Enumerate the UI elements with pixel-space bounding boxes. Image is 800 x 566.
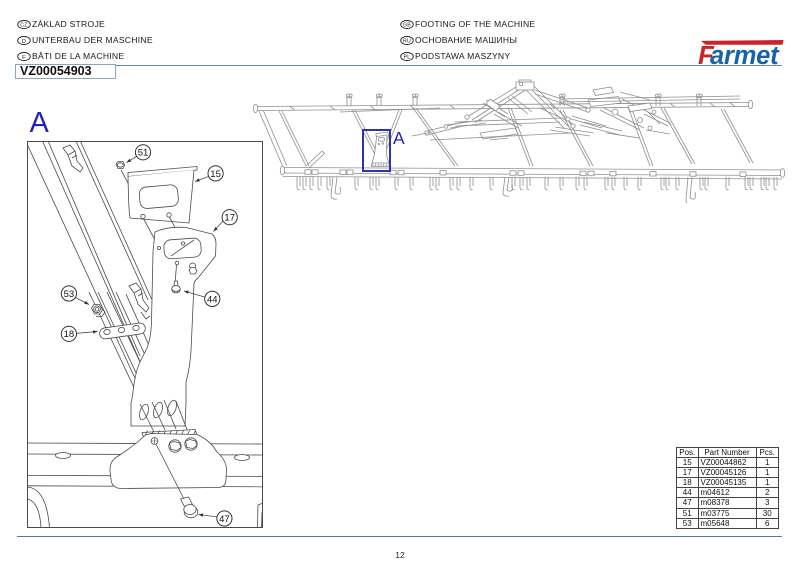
svg-text:D: D — [22, 38, 26, 44]
svg-text:CZ: CZ — [20, 22, 27, 28]
svg-text:RU: RU — [403, 38, 411, 44]
svg-text:GB: GB — [403, 22, 411, 28]
svg-text:17: 17 — [224, 213, 235, 224]
svg-text:15: 15 — [210, 169, 221, 180]
svg-text:PL: PL — [404, 54, 411, 60]
svg-text:47: 47 — [219, 514, 230, 525]
svg-text:44: 44 — [207, 294, 218, 305]
svg-text:armet: armet — [710, 42, 780, 66]
svg-text:51: 51 — [138, 148, 149, 159]
svg-text:F: F — [22, 54, 26, 60]
svg-text:18: 18 — [64, 329, 75, 340]
svg-text:53: 53 — [64, 289, 75, 300]
